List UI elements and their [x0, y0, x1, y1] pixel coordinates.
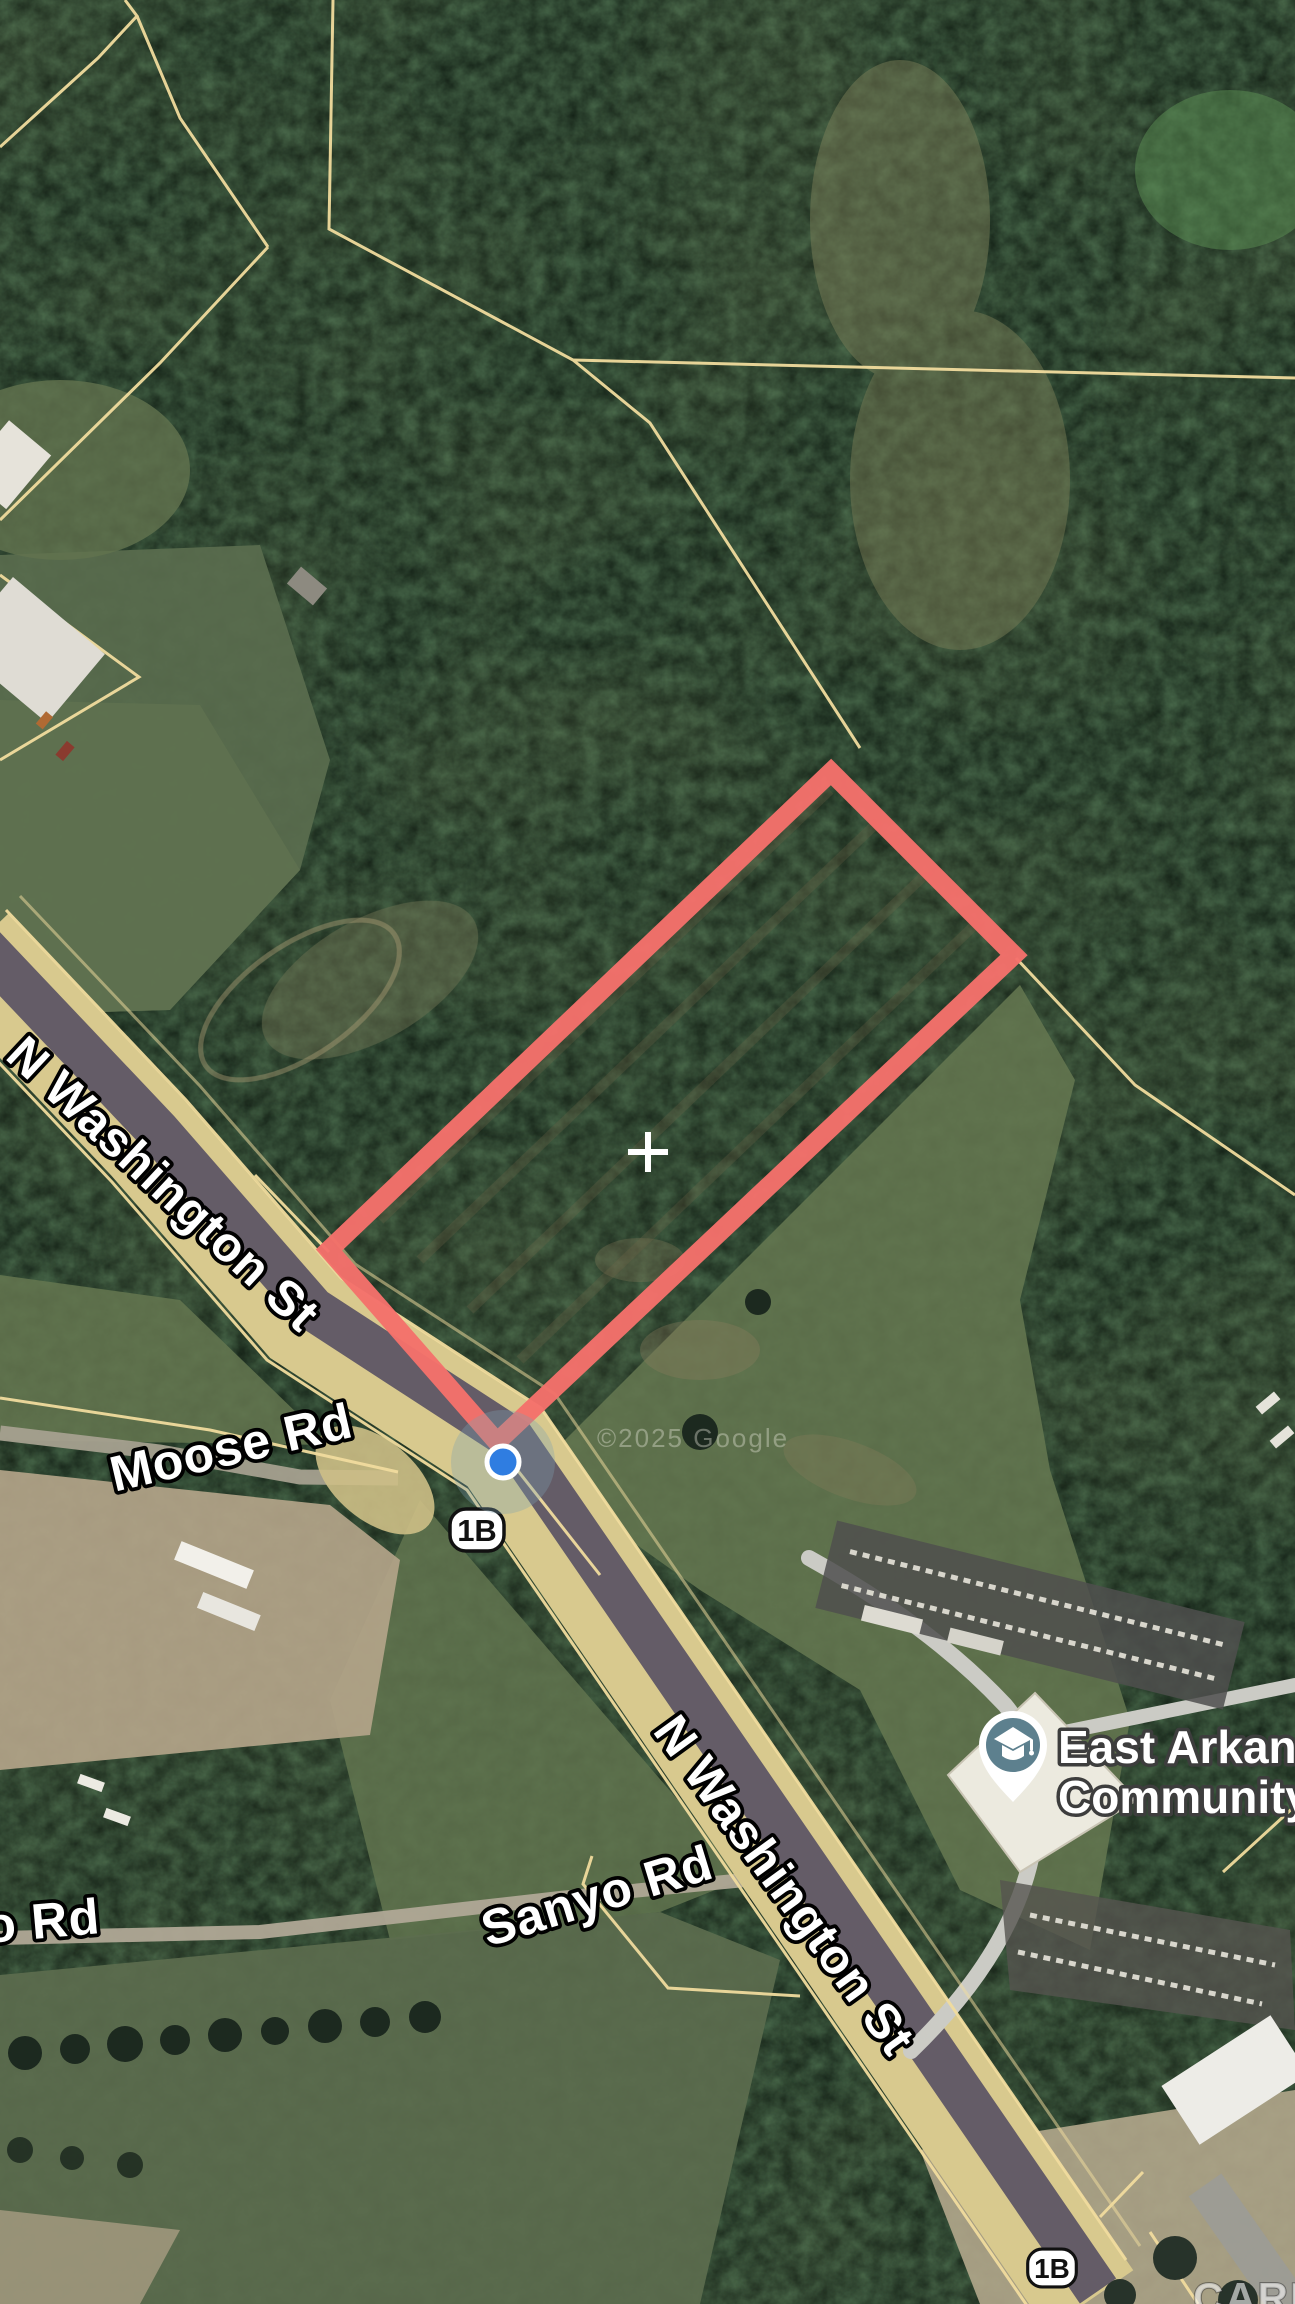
route-shield-1b-upper: 1B [450, 1509, 504, 1551]
road-label-sanyo-rd-clipped: o Rd [0, 1888, 102, 1954]
mls-watermark: CARMLS, INC [1193, 2274, 1295, 2304]
svg-text:1B: 1B [457, 1513, 497, 1548]
current-location-marker[interactable] [451, 1410, 555, 1514]
satellite-map-canvas[interactable]: ©2025 Google N Washington St N Washingto… [0, 0, 1295, 2304]
poi-name-line2: Community [1058, 1771, 1295, 1823]
location-dot [487, 1446, 519, 1478]
poi-name-line1: East Arkans [1058, 1721, 1295, 1773]
google-attribution-watermark: ©2025 Google [597, 1423, 789, 1453]
route-shield-1b-lower: 1B [1028, 2249, 1077, 2287]
svg-text:1B: 1B [1034, 2253, 1070, 2284]
